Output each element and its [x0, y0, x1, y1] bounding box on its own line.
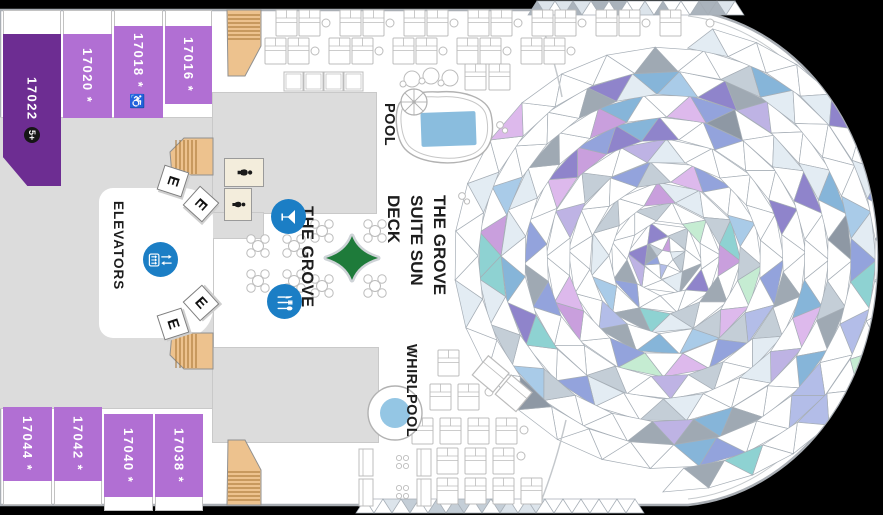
- side-table: [642, 19, 650, 27]
- sun-lounger: [288, 38, 309, 64]
- balcony: [3, 10, 61, 35]
- sun-lounger: [480, 38, 501, 64]
- cabana: [324, 72, 343, 91]
- elevator-letter: E: [163, 174, 182, 189]
- cabin-17040[interactable]: 17040 *: [104, 414, 153, 497]
- cabin-17042[interactable]: 17042 *: [54, 407, 102, 481]
- balcony: [104, 496, 153, 511]
- dining-table-cluster: [247, 270, 269, 292]
- balcony: [155, 496, 203, 511]
- couch: [359, 479, 373, 506]
- restroom-icon: [224, 188, 252, 221]
- sun-lounger: [555, 10, 576, 36]
- deck-detail: [497, 122, 508, 134]
- elevator-icon: [143, 242, 178, 277]
- side-table: [514, 19, 522, 27]
- sun-lounger: [489, 64, 510, 90]
- balcony: [3, 480, 52, 505]
- sun-lounger: [437, 478, 458, 504]
- sun-lounger: [404, 10, 425, 36]
- sun-lounger: [437, 448, 458, 474]
- chair: [438, 80, 444, 86]
- sun-lounger: [468, 418, 489, 444]
- side-table: [322, 19, 330, 27]
- cutlery-icon: [275, 291, 295, 312]
- umbrella-icon: [401, 89, 427, 115]
- small-table: [403, 455, 408, 460]
- cabin-17018[interactable]: 17018 * ♿: [114, 26, 163, 118]
- stairs-icon: [227, 440, 261, 505]
- cabin-number: 17042 *: [71, 416, 86, 471]
- dining-table-cluster: [247, 235, 269, 257]
- compass-star-icon: [326, 236, 378, 280]
- balcony: [63, 10, 112, 35]
- sun-lounger: [458, 384, 479, 410]
- cabin-17016[interactable]: 17016 *: [165, 26, 212, 104]
- side-table: [520, 426, 528, 434]
- restroom-icon: [224, 158, 264, 187]
- elevator-panel-icon: [147, 250, 174, 270]
- cabin-17020[interactable]: 17020 *: [63, 34, 112, 118]
- sun-lounger: [465, 478, 486, 504]
- sun-lounger: [468, 10, 489, 36]
- cabin-number: 17018 * ♿: [131, 33, 146, 111]
- occupancy-badge: 5+: [24, 127, 40, 143]
- side-table: [439, 47, 447, 55]
- side-table: [578, 19, 586, 27]
- sun-lounger: [430, 384, 451, 410]
- cabin-17022[interactable]: 17022 5+: [3, 34, 61, 186]
- sun-lounger: [660, 10, 681, 36]
- elevator-letter: E: [191, 294, 210, 313]
- small-table: [403, 493, 408, 498]
- label-sun-deck-line1: THE GROVE: [429, 195, 449, 295]
- cruise-deck-plan: 17022 5+ 17020 * 17018 * ♿ 17016 * 17044…: [0, 0, 883, 515]
- sun-lounger: [493, 478, 514, 504]
- sun-lounger: [352, 38, 373, 64]
- label-sun-deck-line2: SUITE SUN: [406, 195, 426, 286]
- chair: [419, 78, 425, 84]
- small-table: [396, 463, 401, 468]
- side-table: [450, 19, 458, 27]
- small-table: [403, 485, 408, 490]
- label-pool: POOL: [381, 103, 397, 146]
- side-table: [706, 19, 714, 27]
- sun-lounger: [438, 350, 459, 376]
- sun-lounger: [619, 10, 640, 36]
- side-table: [311, 47, 319, 55]
- sun-lounger: [363, 10, 384, 36]
- person-icon: [231, 197, 246, 212]
- elevator-letter: E: [163, 317, 182, 332]
- cabana: [304, 72, 323, 91]
- cabana: [284, 72, 303, 91]
- sun-lounger: [491, 10, 512, 36]
- bar-icon: [271, 199, 306, 234]
- small-table: [396, 485, 401, 490]
- couch: [417, 479, 431, 506]
- side-table: [386, 19, 394, 27]
- cabin-17038[interactable]: 17038 *: [155, 414, 203, 497]
- side-table: [375, 47, 383, 55]
- sun-lounger: [544, 38, 565, 64]
- stairs-icon: [227, 10, 261, 76]
- label-whirlpool: WHIRLPOOL: [403, 344, 419, 437]
- balcony: [165, 10, 212, 27]
- dining-icon: [267, 284, 302, 319]
- sun-lounger: [457, 38, 478, 64]
- martini-icon: [279, 207, 299, 227]
- sun-lounger: [276, 10, 297, 36]
- chair: [400, 81, 406, 87]
- sun-lounger: [596, 10, 617, 36]
- small-table: [396, 455, 401, 460]
- side-table: [503, 47, 511, 55]
- cabin-number: 17020 *: [80, 48, 95, 103]
- sun-lounger: [340, 10, 361, 36]
- sun-lounger: [521, 478, 542, 504]
- sun-lounger: [265, 38, 286, 64]
- daybed: [472, 356, 532, 412]
- label-sun-deck-line3: DECK: [383, 195, 403, 243]
- cabin-17044[interactable]: 17044 *: [3, 407, 52, 481]
- couch: [359, 449, 373, 476]
- couch: [417, 449, 431, 476]
- sun-lounger: [393, 38, 414, 64]
- sun-lounger: [465, 448, 486, 474]
- sun-lounger: [329, 38, 350, 64]
- small-table: [396, 493, 401, 498]
- side-table: [567, 47, 575, 55]
- cabin-number: 17016 *: [181, 37, 196, 92]
- cabin-number: 17038 *: [172, 428, 187, 483]
- person-icon: [236, 164, 253, 181]
- sun-lounger: [493, 448, 514, 474]
- cabana: [344, 72, 363, 91]
- cabin-number: 17044 *: [20, 416, 35, 471]
- sun-lounger: [416, 38, 437, 64]
- balcony: [114, 10, 163, 27]
- sun-lounger: [532, 10, 553, 36]
- side-table: [517, 452, 525, 460]
- sun-lounger: [496, 418, 517, 444]
- elevator-letter: E: [191, 195, 210, 214]
- small-table: [403, 463, 408, 468]
- sun-lounger: [427, 10, 448, 36]
- deck-detail: [459, 193, 470, 204]
- sun-lounger: [440, 418, 461, 444]
- sun-lounger: [299, 10, 320, 36]
- cabin-number: 17040 *: [121, 428, 136, 483]
- label-elevators: ELEVATORS: [111, 201, 126, 290]
- balcony: [54, 480, 102, 505]
- dining-table-cluster: [364, 275, 386, 297]
- sun-lounger: [521, 38, 542, 64]
- stairs-icon: [170, 333, 213, 369]
- cabin-number: 17022: [25, 77, 40, 121]
- sun-lounger: [465, 64, 486, 90]
